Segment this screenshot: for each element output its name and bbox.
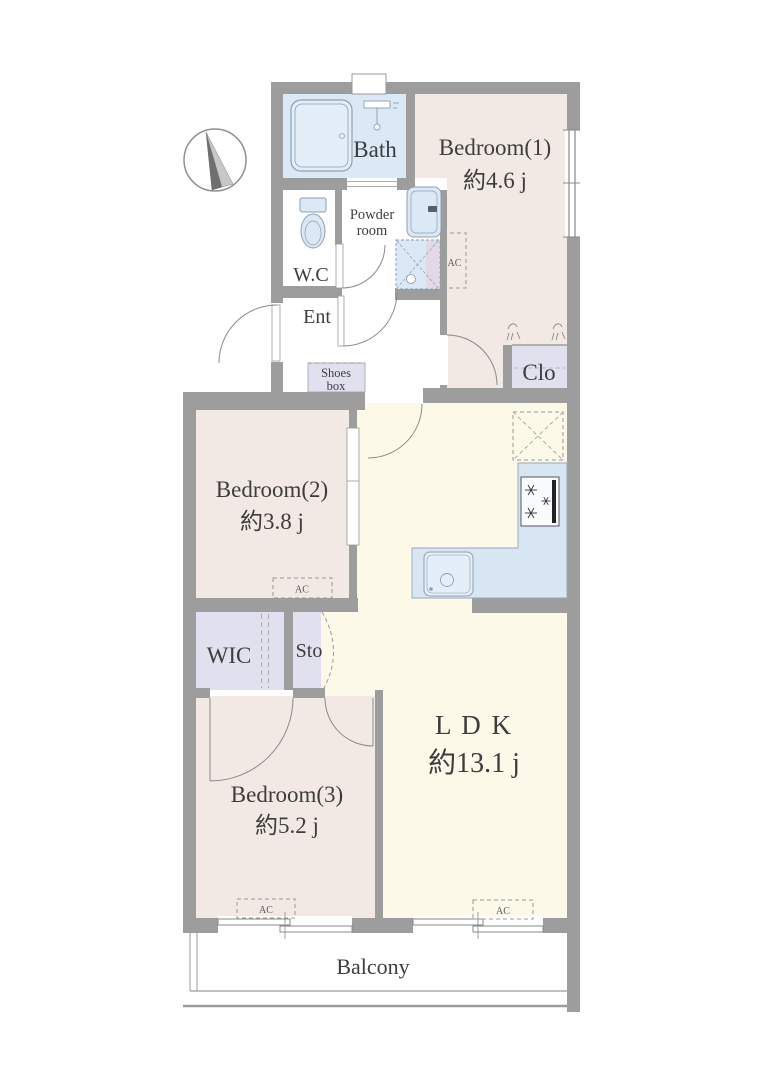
- bedroom2-area: 約3.8 j: [240, 509, 304, 534]
- bedroom1-label: Bedroom(1): [439, 135, 551, 160]
- bedroom1-window: [563, 130, 580, 237]
- ldk-area: 約13.1 j: [428, 747, 520, 779]
- bedroom3-area: 約5.2 j: [255, 813, 319, 838]
- shoes-box-label-2: box: [327, 379, 347, 393]
- room-bedroom2: [196, 410, 349, 600]
- shoes-box-label-1: Shoes: [321, 366, 351, 380]
- bedroom2-sliding-door: [347, 428, 359, 545]
- ent-label: Ent: [303, 306, 331, 328]
- bathtub-icon: [291, 100, 352, 171]
- bedroom2-label: Bedroom(2): [216, 477, 328, 502]
- washing-machine-pan-icon: [396, 240, 440, 289]
- balcony-label: Balcony: [336, 954, 409, 979]
- ac-label: AC: [295, 585, 309, 596]
- floor-plan: AC AC AC AC Bath Bedroom(1) 約4.6 j Powde…: [0, 0, 768, 1087]
- bedroom1-door-opening: [439, 335, 448, 385]
- vanity-sink-icon: [407, 187, 441, 237]
- kitchen-sink-icon: [424, 552, 473, 596]
- compass-icon: [184, 129, 246, 191]
- wic-label: WIC: [207, 643, 252, 668]
- hall-ldk-opening: [365, 388, 423, 403]
- storage-label: Sto: [296, 640, 323, 662]
- room-bedroom3: [196, 696, 375, 918]
- closet-label: Clo: [522, 360, 555, 385]
- bath-door: [347, 178, 397, 190]
- toilet-icon: [300, 198, 326, 248]
- powder-room-label-1: Powder: [350, 207, 394, 223]
- bath-label: Bath: [353, 137, 397, 162]
- bedroom1-area: 約4.6 j: [463, 168, 527, 193]
- ac-label: AC: [448, 258, 462, 269]
- ac-label: AC: [496, 906, 510, 917]
- entry-door: [219, 305, 280, 363]
- bedroom3-label: Bedroom(3): [231, 782, 343, 807]
- ldk-balcony-window: [413, 912, 543, 939]
- powder-room-label-2: room: [357, 223, 388, 239]
- bath-window: [352, 74, 386, 94]
- ldk-label: L D K: [435, 710, 513, 740]
- ac-label: AC: [259, 905, 273, 916]
- floor-plan-page: AC AC AC AC Bath Bedroom(1) 約4.6 j Powde…: [0, 0, 768, 1087]
- stove-icon: [521, 477, 559, 526]
- bedroom3-balcony-window: [218, 912, 352, 939]
- wc-label: W.C: [293, 264, 328, 286]
